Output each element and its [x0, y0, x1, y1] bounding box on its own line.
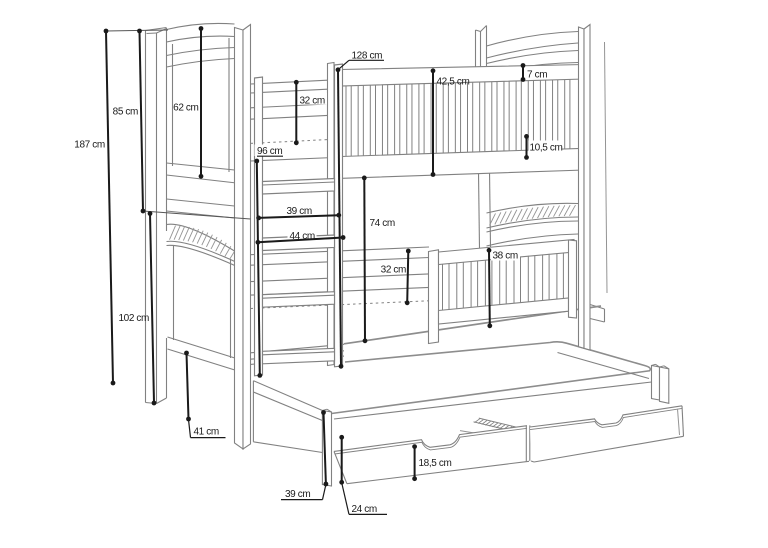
svg-text:18,5 cm: 18,5 cm	[419, 458, 452, 469]
svg-text:32 cm: 32 cm	[381, 265, 406, 276]
svg-text:42,5 cm: 42,5 cm	[437, 77, 470, 88]
svg-text:39 cm: 39 cm	[285, 489, 310, 500]
svg-text:38 cm: 38 cm	[493, 251, 518, 262]
svg-text:10,5 cm: 10,5 cm	[530, 143, 563, 154]
svg-text:96 cm: 96 cm	[257, 146, 282, 157]
svg-text:41 cm: 41 cm	[194, 427, 219, 438]
svg-text:85 cm: 85 cm	[113, 107, 138, 118]
svg-text:39 cm: 39 cm	[287, 206, 312, 217]
svg-text:24 cm: 24 cm	[352, 504, 377, 515]
svg-text:187 cm: 187 cm	[74, 140, 105, 151]
svg-text:44 cm: 44 cm	[290, 231, 315, 242]
svg-text:62 cm: 62 cm	[173, 103, 198, 114]
svg-text:102 cm: 102 cm	[118, 313, 149, 324]
svg-text:7 cm: 7 cm	[527, 70, 547, 81]
svg-text:74 cm: 74 cm	[370, 218, 395, 229]
svg-text:128 cm: 128 cm	[352, 51, 383, 62]
svg-text:32 cm: 32 cm	[300, 96, 325, 107]
